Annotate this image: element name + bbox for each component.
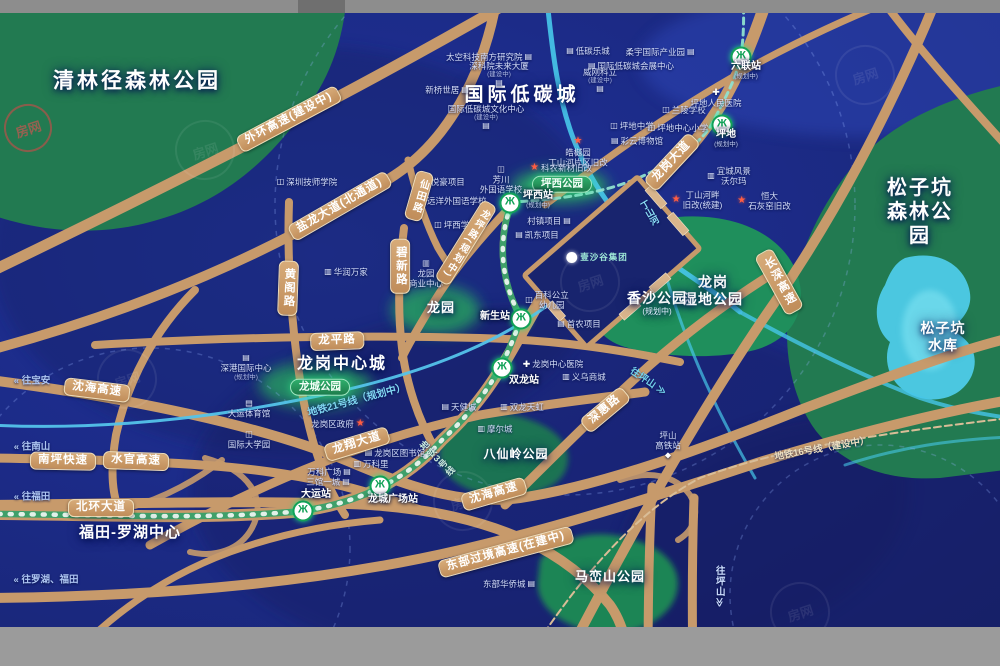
label-text: 科农新材旧改 [541, 163, 592, 173]
vanke-plaza: 万科广场▤ [307, 467, 351, 477]
huarun-wanjia: ▥华润万家 [324, 267, 368, 277]
school-icon: ◫ [648, 124, 656, 132]
longping-road-pill: 龙平路 [310, 331, 364, 351]
label-text: 六联站 [731, 61, 761, 72]
label-text: 龙岗区政府 [311, 419, 354, 429]
watermark-logo: 房网 [827, 37, 903, 113]
project-logo: 壹沙谷集团 [566, 251, 628, 263]
label-text: « 往福田 [14, 491, 50, 502]
pingdi-station-label: 坪地(规划中) [714, 129, 738, 149]
to-baoan-arrow: « 往宝安 [14, 375, 50, 386]
longgang-library: ▤龙岗区图书馆 [365, 448, 426, 458]
caiyun-museum: ▤彩云博物馆 [611, 136, 663, 146]
watermark-logo: 房网 [167, 112, 243, 188]
longgang-central-city-label: 龙岗中心城 [297, 354, 387, 373]
building-icon: ▤ [461, 86, 469, 94]
shuiguan-expressway-pill: 水官高速 [103, 451, 170, 471]
label-text: « 往南山 [14, 441, 50, 452]
project-logo-icon [566, 252, 577, 263]
label-text: 龙平路 [318, 333, 356, 346]
label-text: 深港国际中心 [220, 363, 271, 373]
shuanglong-station-label: 双龙站 [509, 375, 539, 387]
label-text: 华润万家 [334, 267, 368, 277]
metro-logo-glyph: Ж [497, 361, 507, 373]
map-canvas: 清林径森林公园国际低碳城松子坑 森林公园松子坑水库龙岗 湿地公园香沙公园(规划中… [0, 0, 1000, 666]
ditan-lecheng: ▤低碳乐城 [566, 46, 610, 56]
maluanshan-park-label: 马峦山公园 [575, 569, 645, 585]
watermark-text: 房网 [785, 599, 816, 625]
label-text: 外环高速(建设中) [243, 90, 334, 146]
building-icon: ▤ [524, 53, 532, 61]
label-text: 坪西站 [523, 190, 553, 201]
project-name: 壹沙谷集团 [580, 251, 628, 263]
label-text: 双龙站 [509, 375, 539, 386]
label-text: 柔宇国际产业园 [625, 47, 685, 57]
shop-icon: ▥ [500, 403, 508, 411]
label-text: « 往宝安 [14, 375, 50, 386]
metro-logo-glyph: Ж [375, 479, 385, 491]
label-text: 义乌商城 [572, 372, 606, 382]
waihuan-expressway-pill: 外环高速(建设中) [235, 85, 343, 154]
to-luohu-futian-arrow: « 往罗湖、福田 [14, 574, 79, 585]
top-letterbox-bar [0, 0, 1000, 13]
label-text: 双龙天虹 [510, 402, 544, 412]
building-icon: ▤ [342, 478, 350, 486]
cunzhen-project: 村镇项目▤ [527, 216, 571, 226]
label-text: 凯东项目 [525, 230, 559, 240]
longcheng-park-pill: 龙城公园 [290, 379, 350, 396]
building-icon: ▤ [596, 85, 604, 93]
label-sub: (规划中) [627, 307, 687, 317]
pingdi-peoples-hospital: ✚坪地人民医院 [690, 88, 741, 108]
bottom-letterbox-bar [0, 627, 1000, 666]
label-text: 地铁16号线（建设中） [774, 435, 871, 463]
dingshanhepan-project: ★丁山河畔 旧改(统建) [672, 190, 723, 210]
pingxi-station-metro-icon: Ж [500, 193, 521, 214]
label-text: 彩云博物馆 [621, 136, 664, 146]
school-icon: ◫ [434, 221, 442, 229]
metro-logo-glyph: Ж [736, 50, 746, 62]
longping-rd-planned-pill: 龙坪路(规划中) [434, 199, 498, 287]
label-text: 龙岗区图书馆 [374, 448, 425, 458]
shop-icon: ▥ [324, 268, 332, 276]
label-text: 深圳技师学院 [286, 177, 337, 187]
label-text: 坪地中心小学 [657, 123, 708, 133]
building-icon: ▤ [566, 47, 574, 55]
watermark-text: 房网 [13, 115, 44, 141]
label-text: 东部过境高速(在建中) [445, 530, 566, 573]
metro-logo-glyph: Ж [516, 312, 526, 324]
label-text: 仙田路 [409, 177, 429, 215]
xinsheng-station-label: 新生站 [480, 311, 510, 323]
school-icon: ◫ [497, 165, 505, 173]
metro-line16-label: 地铁16号线（建设中） [774, 435, 871, 463]
label-text: 新桥世居 [425, 85, 459, 95]
label-text: 坪地 [716, 129, 736, 140]
label-text: 威刚科立 [583, 67, 617, 77]
building-icon: ▤ [563, 217, 571, 225]
songzikeng-forest-park-label: 松子坑 森林公园 [880, 176, 960, 248]
school-icon: ◫ [610, 122, 618, 130]
label-text: 悦豪项目 [431, 177, 465, 187]
building-icon: ▤ [687, 48, 695, 56]
nanping-expressway-pill: 南坪快速 [30, 452, 96, 471]
label-text: 万科广场 [307, 467, 341, 477]
shengang-international-center: ▤深港国际中心(规划中) [220, 354, 271, 382]
label-text: 地铁3号线 [417, 439, 457, 479]
yiwu-mall: ▥义乌商城 [562, 372, 606, 382]
label-text: 龙城公园 [299, 381, 341, 393]
xinsheng-station-metro-icon: Ж [511, 309, 532, 330]
building-icon: ▤ [441, 403, 449, 411]
longyuan-park-label: 龙园 [427, 300, 455, 316]
qinglinjing-forest-park-label: 清林径森林公园 [53, 68, 221, 93]
label-text: 龙岗中心医院 [532, 359, 583, 369]
to-pingshan-arrow-bottom: 往坪山≫ [713, 566, 724, 608]
label-text: 万科里 [363, 459, 389, 469]
label-text: 香沙公园 [627, 290, 687, 306]
label-sub: (规划中) [731, 73, 761, 81]
baxianling-park-label: 八仙岭公园 [483, 447, 548, 461]
songzikeng-reservoir-label: 松子坑水库 [915, 320, 972, 354]
label-text: 大运站 [301, 489, 331, 500]
label-text: 松子坑水库 [921, 320, 966, 353]
dingshan-river-label: 丁山河 [638, 199, 661, 228]
star-icon: ★ [530, 163, 539, 173]
label-text: 摩尔城 [487, 424, 513, 434]
pingshan-hsr-station: 坪山 高铁站◆ [655, 430, 681, 459]
pingxi-station-label: 坪西站(规划中) [523, 190, 553, 210]
label-text: 北环大道 [76, 501, 126, 513]
label-text: 低碳乐城 [576, 46, 610, 56]
international-university-park: ◫国际大学园 [228, 430, 271, 449]
school-icon: ◫ [662, 106, 670, 114]
school-icon: ◫ [245, 430, 253, 438]
label-text: 国际低碳城 [464, 85, 579, 106]
label-text: 大运体育馆 [228, 408, 271, 418]
label-text: 东部华侨城 [483, 579, 526, 589]
school-icon: ◫ [525, 296, 533, 304]
building-icon: ▤ [495, 79, 503, 87]
label-text: 远洋外国语学校 [427, 196, 487, 206]
dongbu-guojing-expressway-pill: 东部过境高速(在建中) [437, 526, 575, 579]
moer-city: ▥摩尔城 [477, 424, 512, 434]
label-text: 坪山 高铁站 [655, 430, 681, 450]
shop-icon: ▥ [562, 373, 570, 381]
longgang-central-hospital: ✚龙岗中心医院 [523, 359, 584, 369]
longgang-district-government: 龙岗区政府★ [311, 419, 364, 429]
xiangsha-park-label: 香沙公园(规划中) [627, 290, 687, 316]
label-text: 龙园 [427, 300, 455, 315]
watermark-text: 房网 [190, 137, 221, 163]
label-text: 丁山河 [638, 199, 660, 227]
shop-icon: ▥ [353, 460, 361, 468]
to-pingshan-arrow-river: 往坪山 ≫ [628, 366, 668, 398]
label-text: 马峦山公园 [575, 569, 645, 584]
vanke-li: ▥万科里 [353, 459, 388, 469]
label-text: 首农项目 [567, 319, 601, 329]
star-icon: ★ [356, 419, 365, 429]
label-text: 福田-罗湖中心 [79, 524, 181, 541]
label-text: 清林径森林公园 [53, 69, 221, 92]
label-text: 往坪山≫ [714, 566, 725, 608]
longgang-wetland-park-label: 龙岗 湿地公园 [683, 274, 743, 308]
fangchuan-foreign-school: ◫芳川 外国语学校 [480, 165, 523, 194]
sanguan-yicheng: 三馆一城▤ [306, 477, 350, 487]
label-text: « 往罗湖、福田 [14, 574, 79, 585]
label-text: 龙坪路(规划中) [440, 207, 491, 280]
watermark-text: 房网 [575, 269, 606, 295]
label-text: 村镇项目 [527, 216, 561, 226]
dongbu-oct: 东部华侨城▤ [483, 579, 535, 589]
hospital-icon: ✚ [523, 360, 531, 369]
label-text: 坪地人民医院 [690, 98, 741, 108]
shounong-project: ▤首农项目 [557, 319, 601, 329]
pingdi-central-primary-school: ◫坪地中心小学 [648, 123, 709, 133]
label-text: 芳川 外国语学校 [480, 174, 523, 194]
label-text: 国际低碳城文化中心 [448, 104, 525, 114]
star-icon: ★ [574, 136, 583, 146]
kaidong-project: ▤凯东项目 [515, 230, 559, 240]
label-text: 丁山河畔 旧改(统建) [683, 190, 723, 210]
metro-logo-glyph: Ж [505, 196, 515, 208]
label-text: 国际大学园 [228, 439, 271, 449]
to-futian-arrow: « 往福田 [14, 491, 50, 502]
star-icon: ★ [737, 196, 746, 206]
shenhui-road-pill: 深惠路 [579, 386, 631, 434]
building-icon: ▤ [557, 320, 565, 328]
shenzhen-technician-college: ◫深圳技师学院 [277, 177, 338, 187]
map-stage: 清林径森林公园国际低碳城松子坑 森林公园松子坑水库龙岗 湿地公园香沙公园(规划中… [0, 0, 1000, 666]
hengda-shihuiyao-project: ★恒大 石灰窑旧改 [737, 191, 790, 211]
label-sub: (规划中) [714, 141, 738, 149]
label-text: 水官高速 [111, 453, 161, 467]
label-text: 宜城风景 沃尔玛 [717, 166, 751, 186]
label-text: 碧新路 [395, 246, 407, 287]
changshen-expressway-pill: 长深高速 [754, 247, 804, 316]
building-icon: ▤ [515, 231, 523, 239]
label-text: 新生站 [480, 311, 510, 322]
building-icon: ▤ [245, 399, 253, 407]
ditan-culture-center: 国际低碳城文化中心▤(建设中) [430, 104, 542, 130]
label-sub: (规划中) [220, 374, 271, 382]
label-text: 恒大 石灰窑旧改 [748, 191, 791, 211]
building-icon: ▤ [527, 580, 535, 588]
weigang-keli: 威刚科立▤(建设中) [565, 67, 634, 93]
label-text: 百科公立 幼儿园 [535, 290, 569, 310]
label-text: 沈海高速 [72, 380, 123, 398]
label-text: 龙城广场站 [368, 494, 418, 505]
building-icon: ▤ [343, 468, 351, 476]
kenong-xincai-project: ★科农新材旧改 [530, 163, 592, 173]
label-text: 龙岗中心城 [297, 355, 387, 372]
label-text: 黄阁路 [282, 268, 295, 309]
huangge-road-pill: 黄阁路 [277, 260, 299, 315]
shop-icon: ▥ [477, 425, 485, 433]
shop-icon: ▥ [422, 259, 430, 267]
label-text: 松子坑 森林公园 [887, 177, 953, 247]
watermark-logo: 房网 [89, 341, 165, 417]
watermark-text: 房网 [850, 62, 881, 88]
baike-kindergarten: ◫百科公立 幼儿园 [525, 290, 569, 310]
watermark-logo: 房网 [0, 98, 58, 158]
label-text: 龙岗 湿地公园 [683, 274, 743, 307]
dayun-station-metro-icon: Ж [293, 501, 314, 522]
label-text: 坪西公园 [541, 178, 583, 190]
label-text: 长深高速 [761, 255, 798, 308]
label-text: 三馆一城 [306, 477, 340, 487]
xinqiao-shiju: 新桥世居▤ [425, 85, 469, 95]
metro-line3-label: 地铁3号线 [417, 439, 457, 479]
metro-logo-glyph: Ж [717, 118, 727, 130]
dayun-station-label: 大运站 [301, 489, 331, 501]
rouyu-industrial-park: 柔宇国际产业园▤ [625, 47, 694, 57]
label-text: 天健城 [451, 402, 477, 412]
hospital-icon: ✚ [712, 88, 720, 97]
metro-logo-glyph: Ж [298, 504, 308, 516]
futian-luohu-center-label: 福田-罗湖中心 [79, 524, 181, 542]
label-text: 往坪山 ≫ [628, 366, 668, 398]
label-text: 八仙岭公园 [483, 447, 548, 461]
star-icon: ★ [672, 195, 681, 205]
dayun-gymnasium: ▤大运体育馆 [228, 399, 271, 418]
building-icon: ▤ [242, 354, 250, 362]
shop-icon: ▥ [707, 172, 715, 180]
school-icon: ◫ [277, 178, 285, 186]
beihuan-avenue-pill: 北环大道 [68, 499, 134, 517]
shenkeyuan-future-tower: 深科院未来大厦▤(建设中) [452, 61, 547, 87]
label-text: 南坪快速 [38, 454, 88, 467]
bixin-road-pill: 碧新路 [390, 239, 410, 294]
building-icon: ▤ [611, 137, 619, 145]
liulian-station-label: 六联站(规划中) [731, 61, 761, 81]
train-icon: ◆ [665, 452, 671, 460]
label-sub: (规划中) [523, 202, 553, 210]
building-icon: ▤ [482, 122, 490, 130]
tianjian-city: ▤天健城 [441, 402, 476, 412]
shuanglong-tianhong: ▥双龙天虹 [500, 402, 544, 412]
label-text: 深惠路 [586, 393, 622, 426]
yicheng-fengjing-walmart: ▥宜城风景 沃尔玛 [707, 166, 751, 186]
label-text: 深科院未来大厦 [469, 61, 529, 71]
top-bar-notch [298, 0, 345, 13]
map-labels-layer: 清林径森林公园国际低碳城松子坑 森林公园松子坑水库龙岗 湿地公园香沙公园(规划中… [0, 0, 1000, 666]
longcheng-square-station-label: 龙城广场站 [368, 494, 418, 506]
